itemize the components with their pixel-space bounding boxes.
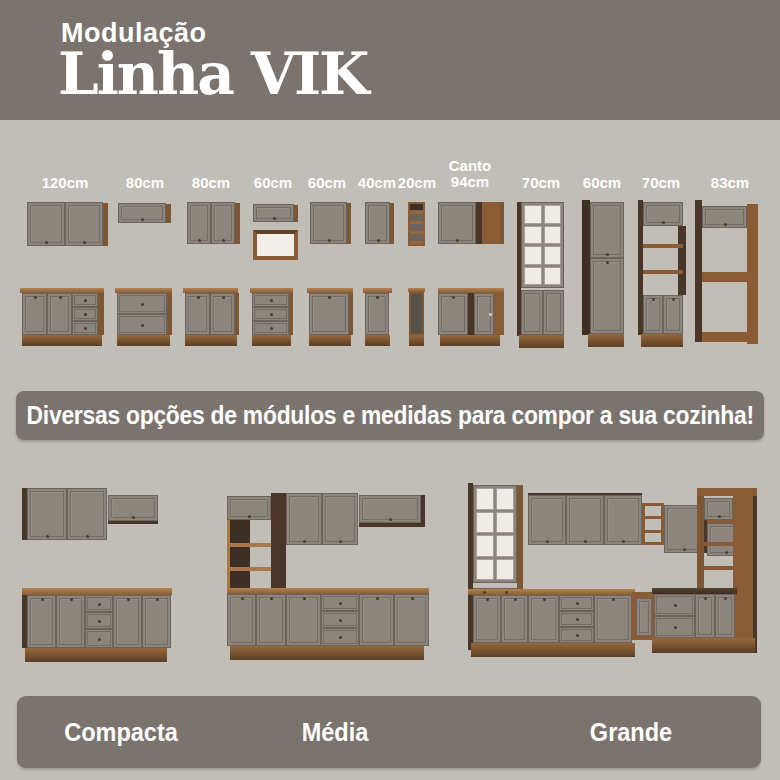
module-wall-corner-94cm <box>438 202 504 244</box>
module-base-drawers-60cm <box>250 288 294 346</box>
size-label-canto-94: Canto 94cm <box>449 158 492 190</box>
kitchen-grande-illustration <box>455 478 765 674</box>
flyer-linha-vik: Modulação Linha VIK 120cm 80cm 80cm 60cm… <box>0 0 780 780</box>
size-label-120: 120cm <box>42 174 89 191</box>
size-label-60a: 60cm <box>254 174 292 191</box>
module-wall-120cm <box>27 202 108 246</box>
banner-text: Diversas opções de módulos e medidas par… <box>26 400 753 431</box>
module-wall-80cm <box>187 202 240 244</box>
module-wall-flip-60cm <box>253 204 298 222</box>
page-title: Linha VIK <box>58 40 367 108</box>
module-open-base-20cm <box>408 288 425 346</box>
kitchen-compacta-illustration <box>15 485 195 677</box>
module-tall-oven-70cm <box>638 200 688 347</box>
module-base-120cm <box>20 288 108 346</box>
size-label-40: 40cm <box>358 174 396 191</box>
size-label-80a: 80cm <box>126 174 164 191</box>
kitchen-names-bar: Compacta Média Grande <box>17 696 761 768</box>
kitchen-name-media: Média <box>302 718 369 747</box>
module-base-60cm <box>307 288 354 346</box>
module-niche-60cm <box>253 230 298 260</box>
module-tall-glass-70cm <box>517 200 568 348</box>
kitchen-media-illustration <box>222 483 434 675</box>
module-base-40cm <box>363 288 393 346</box>
module-wall-flip-80cm <box>118 203 171 223</box>
header-band: Modulação Linha VIK <box>0 0 780 120</box>
module-open-shelf-wall-20cm <box>408 202 425 246</box>
kitchen-name-grande: Grande <box>590 718 672 747</box>
size-label-80b: 80cm <box>192 174 230 191</box>
banner: Diversas opções de módulos e medidas par… <box>16 391 764 440</box>
module-wall-60cm <box>310 202 351 244</box>
size-label-70a: 70cm <box>522 174 560 191</box>
module-wall-40cm <box>365 202 394 244</box>
module-base-corner-94cm <box>438 288 504 346</box>
size-label-60c: 60cm <box>583 174 621 191</box>
size-label-20: 20cm <box>398 174 436 191</box>
module-fridge-frame-83cm <box>695 200 758 350</box>
module-base-drawers-80cm <box>115 288 173 346</box>
size-label-70b: 70cm <box>642 174 680 191</box>
kitchen-name-compacta: Compacta <box>64 718 178 747</box>
size-label-83: 83cm <box>711 174 749 191</box>
module-tall-pantry-60cm <box>582 200 626 347</box>
module-base-80cm <box>183 288 239 346</box>
size-label-60b: 60cm <box>308 174 346 191</box>
